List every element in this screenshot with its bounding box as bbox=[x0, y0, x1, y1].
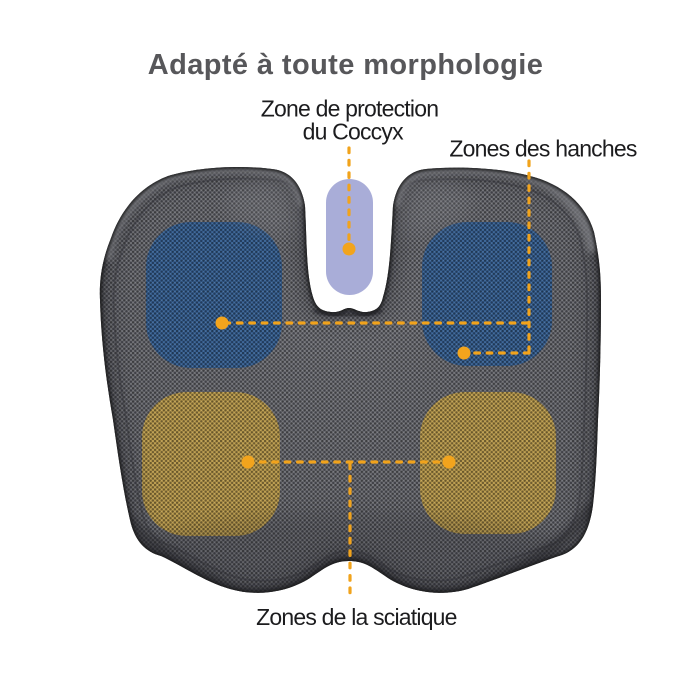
svg-text:du Coccyx: du Coccyx bbox=[303, 119, 404, 145]
svg-text:Zones de la sciatique: Zones de la sciatique bbox=[256, 604, 457, 630]
svg-text:Zones des hanches: Zones des hanches bbox=[449, 136, 636, 162]
svg-text:Adapté à toute morphologie: Adapté à toute morphologie bbox=[148, 49, 543, 81]
svg-text:Zone de protection: Zone de protection bbox=[261, 96, 438, 122]
